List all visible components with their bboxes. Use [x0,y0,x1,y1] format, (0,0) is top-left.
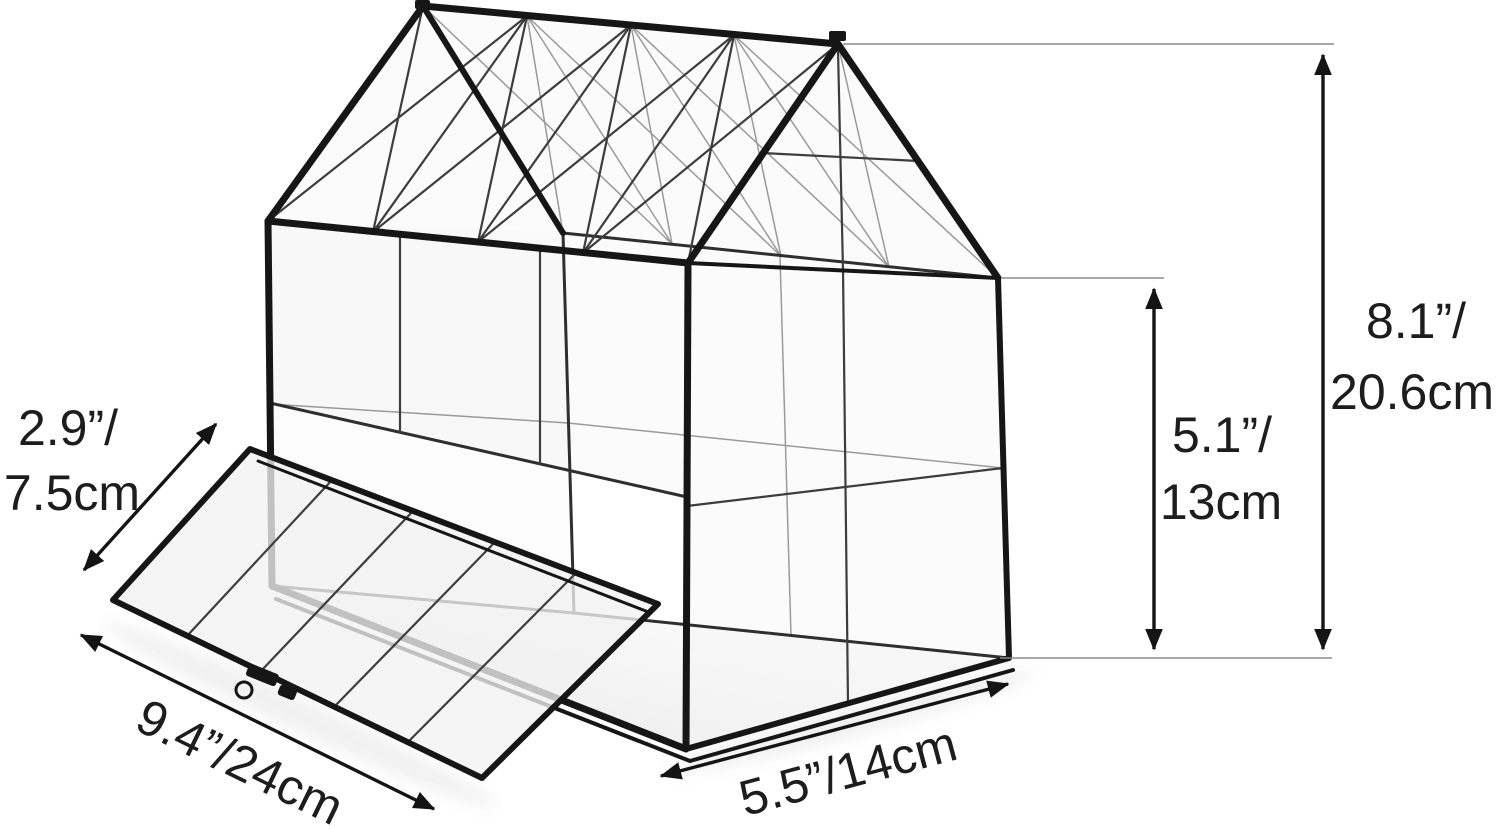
back-apex-cap [415,0,430,9]
total-height-label-line2: 20.6cm [1330,364,1494,420]
wall-height-label-line2: 13cm [1160,474,1282,530]
wall-height-label-line1: 5.1”/ [1172,407,1272,463]
door-height-label-line2: 7.5cm [4,465,140,521]
product-dimension-diagram: 2.9”/ 7.5cm 9.4”/24cm 5.5”/14cm 5.1”/ 13… [0,0,1500,829]
front-apex-cap [829,31,846,41]
total-height-label-line1: 8.1”/ [1366,293,1466,349]
terrarium-dimension-figure: 2.9”/ 7.5cm 9.4”/24cm 5.5”/14cm 5.1”/ 13… [0,0,1500,829]
door-height-label-line1: 2.9”/ [18,400,118,456]
